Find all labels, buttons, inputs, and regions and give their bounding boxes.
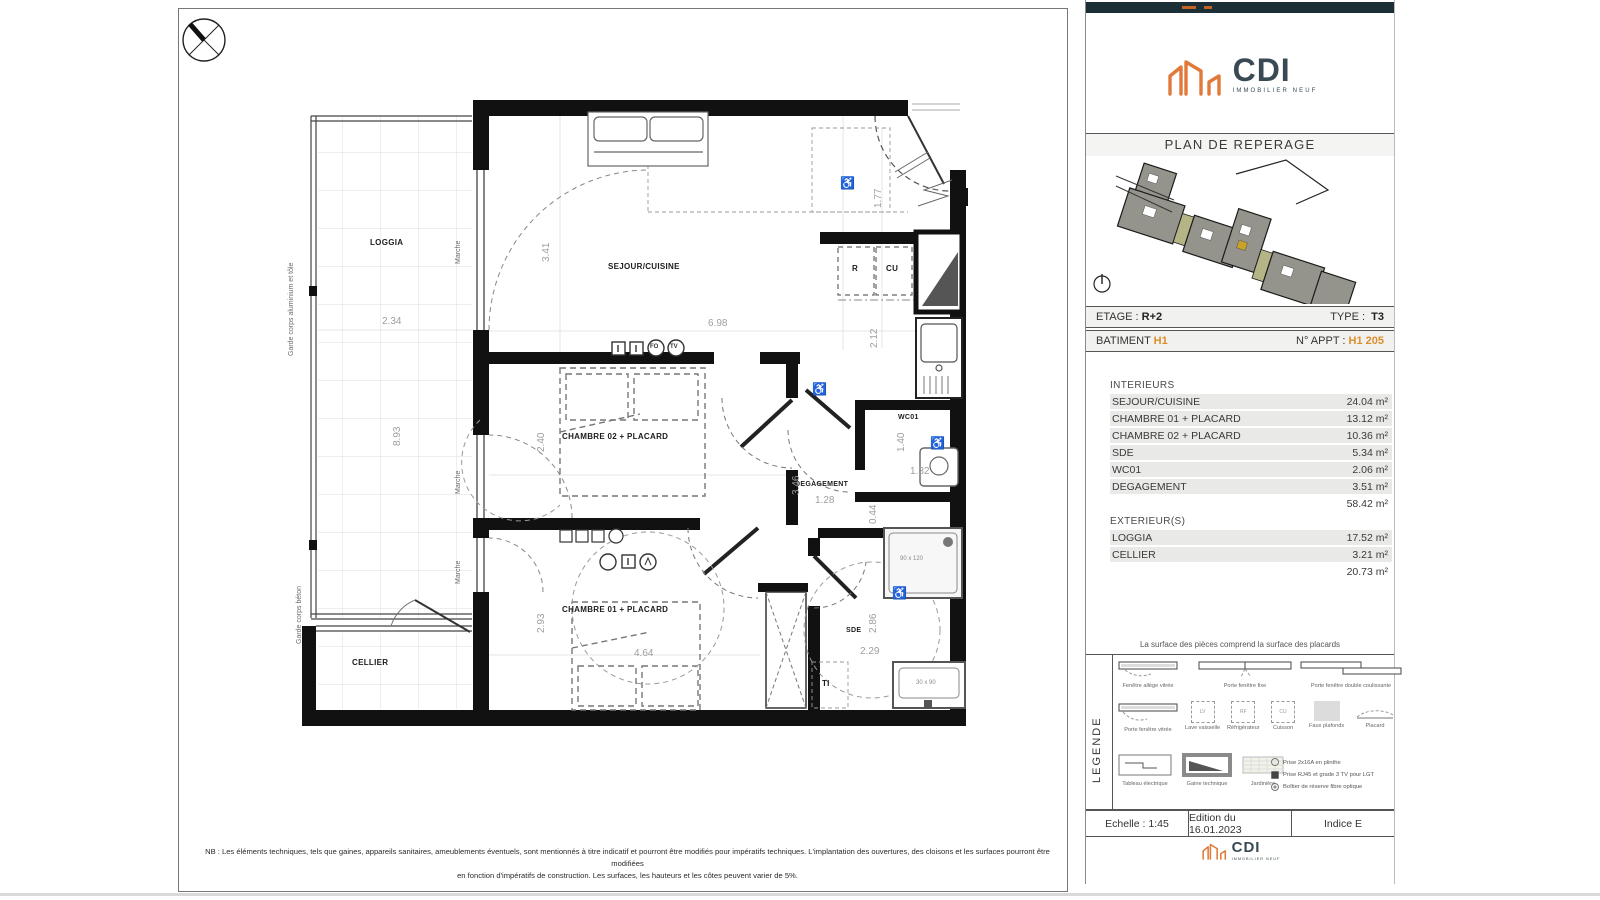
glazed-door-icon (1117, 701, 1179, 725)
table-row: SEJOUR/CUISINE24.04 m² (1110, 394, 1392, 409)
dim-8-93: 8.93 (392, 427, 403, 446)
dim-3-41: 3.41 (541, 243, 552, 262)
annotation-marche-2: Marche (455, 471, 462, 494)
nb-note: NB : Les éléments techniques, tels que g… (195, 846, 1060, 882)
row-label: CHAMBRE 01 + PLACARD (1112, 413, 1241, 425)
legend-title: LEGENDE (1091, 716, 1103, 783)
exterieurs-total: 20.73 m² (1110, 564, 1392, 580)
exterieurs-title: EXTERIEUR(S) (1110, 516, 1392, 527)
legend-label: Porte fenêtre fixe (1224, 683, 1267, 689)
technical-duct-icon (1181, 751, 1233, 779)
annotation-garde-corps-beton: Garde corps béton (296, 586, 303, 644)
table-row: LOGGIA17.52 m² (1110, 530, 1392, 545)
annotation-marche-3: Marche (455, 561, 462, 584)
etage-type-row: ETAGE : R+2 TYPE : T3 (1086, 306, 1394, 328)
type-label: TYPE : (1330, 311, 1365, 323)
icon-letter: CU (1279, 709, 1286, 715)
legend-item: RF Réfrigérateur (1227, 701, 1260, 731)
row-label: DEGAGEMENT (1112, 481, 1187, 493)
row-label: SEJOUR/CUISINE (1112, 396, 1200, 408)
row-label: WC01 (1112, 464, 1141, 476)
landing-stairs (912, 104, 960, 110)
legend-body: Fenêtre allège vitrée Porte fenêtre fixe… (1113, 655, 1394, 809)
legend-bullet: Prise RJ45 et grade 3 TV pour LGT (1271, 769, 1374, 781)
legend-item: Faux plafonds (1309, 701, 1344, 729)
legend-item: Porte fenêtre vitrée (1117, 701, 1179, 733)
type-value: T3 (1371, 311, 1384, 323)
ceiling-icon (1314, 701, 1340, 721)
room-label-ti: TI (822, 679, 830, 688)
wheelchair-icon: ♿ (892, 586, 907, 600)
appt-value: H1 205 (1349, 335, 1384, 347)
legend-item: Porte fenêtre fixe (1197, 659, 1293, 689)
dim-2-40: 2.40 (536, 433, 547, 452)
legend-label: Tableau électrique (1122, 781, 1167, 787)
legend-label: Placard (1366, 723, 1385, 729)
row-value: 3.21 m² (1352, 549, 1388, 561)
row-value: 3.51 m² (1352, 481, 1388, 493)
electrical-panel-icon (1117, 751, 1173, 779)
north-compass-icon (183, 19, 225, 61)
table-row: CELLIER3.21 m² (1110, 547, 1392, 562)
footer-indice: Indice E (1292, 811, 1394, 836)
room-label-cellier: CELLIER (352, 658, 388, 667)
title-block-footer: Echelle : 1:45 Edition du 16.01.2023 Ind… (1086, 810, 1394, 837)
table-row: CHAMBRE 02 + PLACARD10.36 m² (1110, 428, 1392, 443)
apartment-walls (473, 100, 968, 726)
legend-item: Fenêtre allège vitrée (1117, 659, 1179, 689)
cooktop-icon: CU (1271, 701, 1295, 723)
icon-letter: RF (1240, 709, 1247, 715)
legend-label: Réfrigérateur (1227, 725, 1260, 731)
legend-label: Faux plafonds (1309, 723, 1344, 729)
interieurs-total: 58.42 m² (1110, 496, 1392, 512)
basin-size-label: 30 x 90 (916, 680, 936, 686)
table-row: WC012.06 m² (1110, 462, 1392, 477)
dim-4-64: 4.64 (634, 648, 653, 659)
icon-letter: LV (1200, 709, 1206, 715)
row-label: SDE (1112, 447, 1134, 459)
dim-1-28: 1.28 (815, 495, 834, 506)
fiber-icon (1271, 783, 1279, 791)
legend-item: Porte fenêtre double coulissante (1299, 659, 1403, 689)
etage-value: R+2 (1142, 311, 1163, 323)
cellier-tiled-floor (318, 633, 472, 709)
etage: ETAGE : R+2 (1096, 311, 1162, 323)
cdi-logo-icon (1163, 50, 1225, 98)
floor-plan-sheet: LOGGIA SEJOUR/CUISINE CHAMBRE 02 + PLACA… (0, 0, 1600, 900)
batiment-label: BATIMENT (1096, 335, 1151, 347)
annotation-marche-1: Marche (455, 241, 462, 264)
sliding-door-icon (1299, 659, 1403, 681)
dim-2-93: 2.93 (536, 614, 547, 633)
legend-label: Cuisson (1273, 725, 1293, 731)
wheelchair-icon: ♿ (812, 382, 827, 396)
table-row: DEGAGEMENT3.51 m² (1110, 479, 1392, 494)
fridge-icon: RF (1231, 701, 1255, 723)
logo-name: CDI (1232, 840, 1261, 855)
nb-note-line1: NB : Les éléments techniques, tels que g… (195, 846, 1060, 870)
legend-label: Porte fenêtre double coulissante (1311, 683, 1391, 689)
outlet-icon (1271, 758, 1279, 766)
rj45-icon (1271, 771, 1279, 779)
legend-label: Porte fenêtre vitrée (1124, 727, 1172, 733)
row-value: 24.04 m² (1347, 396, 1388, 408)
row-label: CELLIER (1112, 549, 1156, 561)
batiment-appt-row: BATIMENT H1 N° APPT : H1 205 (1086, 330, 1394, 352)
cdi-logo: CDI IMMOBILIER NEUF (1086, 18, 1394, 130)
legend-label: Lave vaisselle (1185, 725, 1220, 731)
sofa (588, 112, 708, 166)
row-value: 2.06 m² (1352, 464, 1388, 476)
footer-echelle: Echelle : 1:45 (1086, 811, 1189, 836)
dim-0-44: 0.44 (868, 505, 879, 524)
legend-item: CU Cuisson (1271, 701, 1295, 731)
logo-tagline: IMMOBILIER NEUF (1232, 857, 1281, 861)
dim-6-98: 6.98 (708, 318, 727, 329)
bullet-label: Boîtier de réserve fibre optique (1283, 784, 1362, 790)
cdi-logo-icon (1200, 838, 1228, 862)
minimap-compass-icon (1094, 274, 1110, 292)
batiment: BATIMENT H1 (1096, 335, 1168, 347)
appt: N° APPT : H1 205 (1296, 335, 1384, 347)
type: TYPE : T3 (1330, 311, 1384, 323)
cellier-bottom-wall (302, 710, 473, 726)
legend-item: LV Lave vaisselle (1185, 701, 1220, 731)
appt-label: N° APPT : (1296, 335, 1345, 347)
reperage-title-bar: PLAN DE REPERAGE (1086, 133, 1394, 157)
technical-shaft (766, 592, 806, 708)
entry-door-arc (875, 116, 950, 191)
annotation-garde-corps-alu: Garde corps aluminium et tôle (288, 263, 295, 356)
bullet-label: Prise RJ45 et grade 3 TV pour LGT (1283, 772, 1374, 778)
logo-name: CDI (1233, 54, 1291, 86)
closet-icon (1355, 701, 1395, 721)
dishwasher-icon: LV (1191, 701, 1215, 723)
table-row: CHAMBRE 01 + PLACARD13.12 m² (1110, 411, 1392, 426)
shower-size-label: 90 x 120 (900, 556, 923, 562)
row-value: 5.34 m² (1352, 447, 1388, 459)
dim-1-77: 1.77 (873, 189, 884, 208)
legend-item: Gaine technique (1181, 751, 1233, 787)
legend-bullet: Boîtier de réserve fibre optique (1271, 781, 1374, 793)
row-value: 17.52 m² (1347, 532, 1388, 544)
cdi-logo-small: CDI IMMOBILIER NEUF (1086, 838, 1394, 862)
title-block-panel: CDI IMMOBILIER NEUF PLAN DE REPERAGE (1085, 0, 1395, 884)
socket-icons-row-c (560, 529, 623, 543)
legend-item: Tableau électrique (1117, 751, 1173, 787)
banner-accent (1182, 6, 1196, 9)
legend-label: Fenêtre allège vitrée (1123, 683, 1174, 689)
socket-label-fo: FO (650, 344, 658, 350)
page-edge (0, 893, 1600, 896)
room-label-chambre02: CHAMBRE 02 + PLACARD (562, 432, 668, 441)
row-label: CHAMBRE 02 + PLACARD (1112, 430, 1241, 442)
etage-label: ETAGE : (1096, 311, 1139, 323)
dim-1-40: 1.40 (896, 433, 907, 452)
room-label-r: R (852, 264, 858, 273)
room-label-sejour: SEJOUR/CUISINE (608, 262, 680, 271)
dim-2-12: 2.12 (869, 329, 880, 348)
batiment-value: H1 (1154, 335, 1168, 347)
dim-1-32: 1.32 (910, 466, 929, 477)
legend-side: LEGENDE (1086, 655, 1113, 809)
row-value: 10.36 m² (1347, 430, 1388, 442)
room-label-loggia: LOGGIA (370, 238, 403, 247)
legend-item: Placard (1355, 701, 1395, 729)
site-plan-minimap (1086, 156, 1394, 304)
dim-2-34: 2.34 (382, 316, 401, 327)
legend-box: LEGENDE Fenêtre allège vitrée Porte fenê… (1086, 654, 1394, 810)
interieurs-title: INTERIEURS (1110, 380, 1392, 391)
row-value: 13.12 m² (1347, 413, 1388, 425)
table-row: SDE5.34 m² (1110, 445, 1392, 460)
room-label-chambre01: CHAMBRE 01 + PLACARD (562, 605, 668, 614)
logo-tagline: IMMOBILIER NEUF (1233, 88, 1318, 94)
cellier-rails (316, 626, 472, 631)
banner-accent (1204, 6, 1212, 9)
socket-label-tv: TV (670, 344, 678, 350)
door-window-icon (1197, 659, 1293, 681)
interior-doors (688, 390, 866, 608)
wheelchair-icon: ♿ (930, 436, 945, 450)
surface-note: La surface des pièces comprend la surfac… (1086, 640, 1394, 649)
panel-top-banner (1086, 2, 1394, 13)
room-label-wc01: WC01 (898, 414, 919, 421)
wheelchair-icon: ♿ (840, 176, 855, 190)
bullet-label: Prise 2x16A en plinthe (1283, 760, 1341, 766)
exterieurs-table: EXTERIEUR(S) LOGGIA17.52 m² CELLIER3.21 … (1110, 516, 1392, 580)
loggia-tiled-floor (318, 116, 472, 618)
footer-edition: Edition du 16.01.2023 (1189, 811, 1292, 836)
socket-icons-row-b (600, 554, 656, 570)
legend-bullets: Prise 2x16A en plinthe Prise RJ45 et gra… (1271, 757, 1374, 794)
entry-door-leaf (908, 116, 944, 184)
interieurs-table: INTERIEURS SEJOUR/CUISINE24.04 m² CHAMBR… (1110, 380, 1392, 512)
room-label-sde: SDE (846, 627, 861, 634)
room-label-degagement: DEGAGEMENT (795, 481, 848, 488)
legend-bullet: Prise 2x16A en plinthe (1271, 757, 1374, 769)
kitchen-fittings (838, 152, 962, 398)
dim-2-29: 2.29 (860, 646, 879, 657)
row-label: LOGGIA (1112, 532, 1152, 544)
window-icon (1117, 659, 1179, 681)
room-label-cu: CU (886, 264, 898, 273)
dim-2-86: 2.86 (868, 614, 879, 633)
legend-label: Gaine technique (1187, 781, 1228, 787)
nb-note-line2: en fonction d'impératifs de construction… (195, 870, 1060, 882)
dim-3-46: 3.46 (791, 476, 802, 495)
